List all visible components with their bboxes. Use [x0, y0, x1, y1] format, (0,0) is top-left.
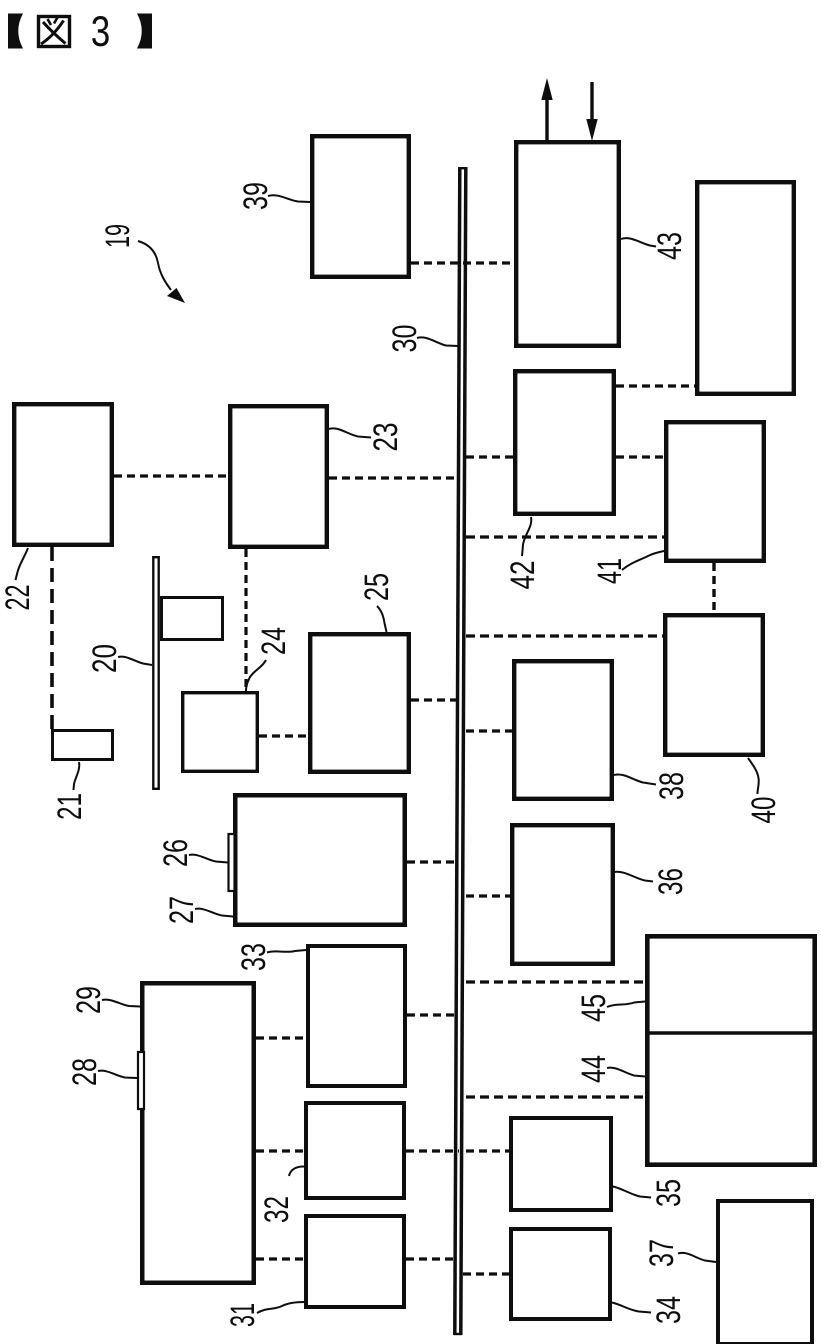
svg-text:24: 24 — [255, 627, 293, 655]
svg-text:22: 22 — [0, 585, 37, 611]
svg-text:45: 45 — [575, 994, 613, 1022]
svg-text:26: 26 — [157, 839, 195, 867]
svg-text:30: 30 — [386, 325, 424, 353]
svg-text:20: 20 — [86, 644, 124, 673]
svg-text:27: 27 — [163, 896, 201, 924]
svg-text:3: 3 — [91, 8, 111, 56]
svg-text:33: 33 — [235, 943, 273, 971]
svg-text:28: 28 — [66, 1058, 104, 1086]
svg-text:21: 21 — [51, 793, 89, 820]
svg-text:38: 38 — [653, 772, 691, 800]
svg-text:39: 39 — [237, 182, 275, 210]
svg-text:36: 36 — [652, 868, 690, 895]
svg-text:42: 42 — [504, 561, 542, 590]
svg-text:25: 25 — [358, 573, 396, 601]
svg-text:19: 19 — [99, 224, 137, 248]
svg-text:43: 43 — [651, 232, 689, 260]
svg-text:35: 35 — [650, 1179, 688, 1207]
svg-text:37: 37 — [643, 1239, 681, 1267]
svg-text:29: 29 — [70, 986, 108, 1014]
svg-text:41: 41 — [591, 558, 629, 584]
svg-text:44: 44 — [575, 1055, 613, 1083]
svg-text:34: 34 — [650, 1296, 688, 1324]
svg-text:32: 32 — [258, 1196, 296, 1223]
svg-text:31: 31 — [224, 1303, 262, 1327]
svg-text:40: 40 — [745, 797, 783, 824]
svg-text:23: 23 — [367, 423, 405, 452]
